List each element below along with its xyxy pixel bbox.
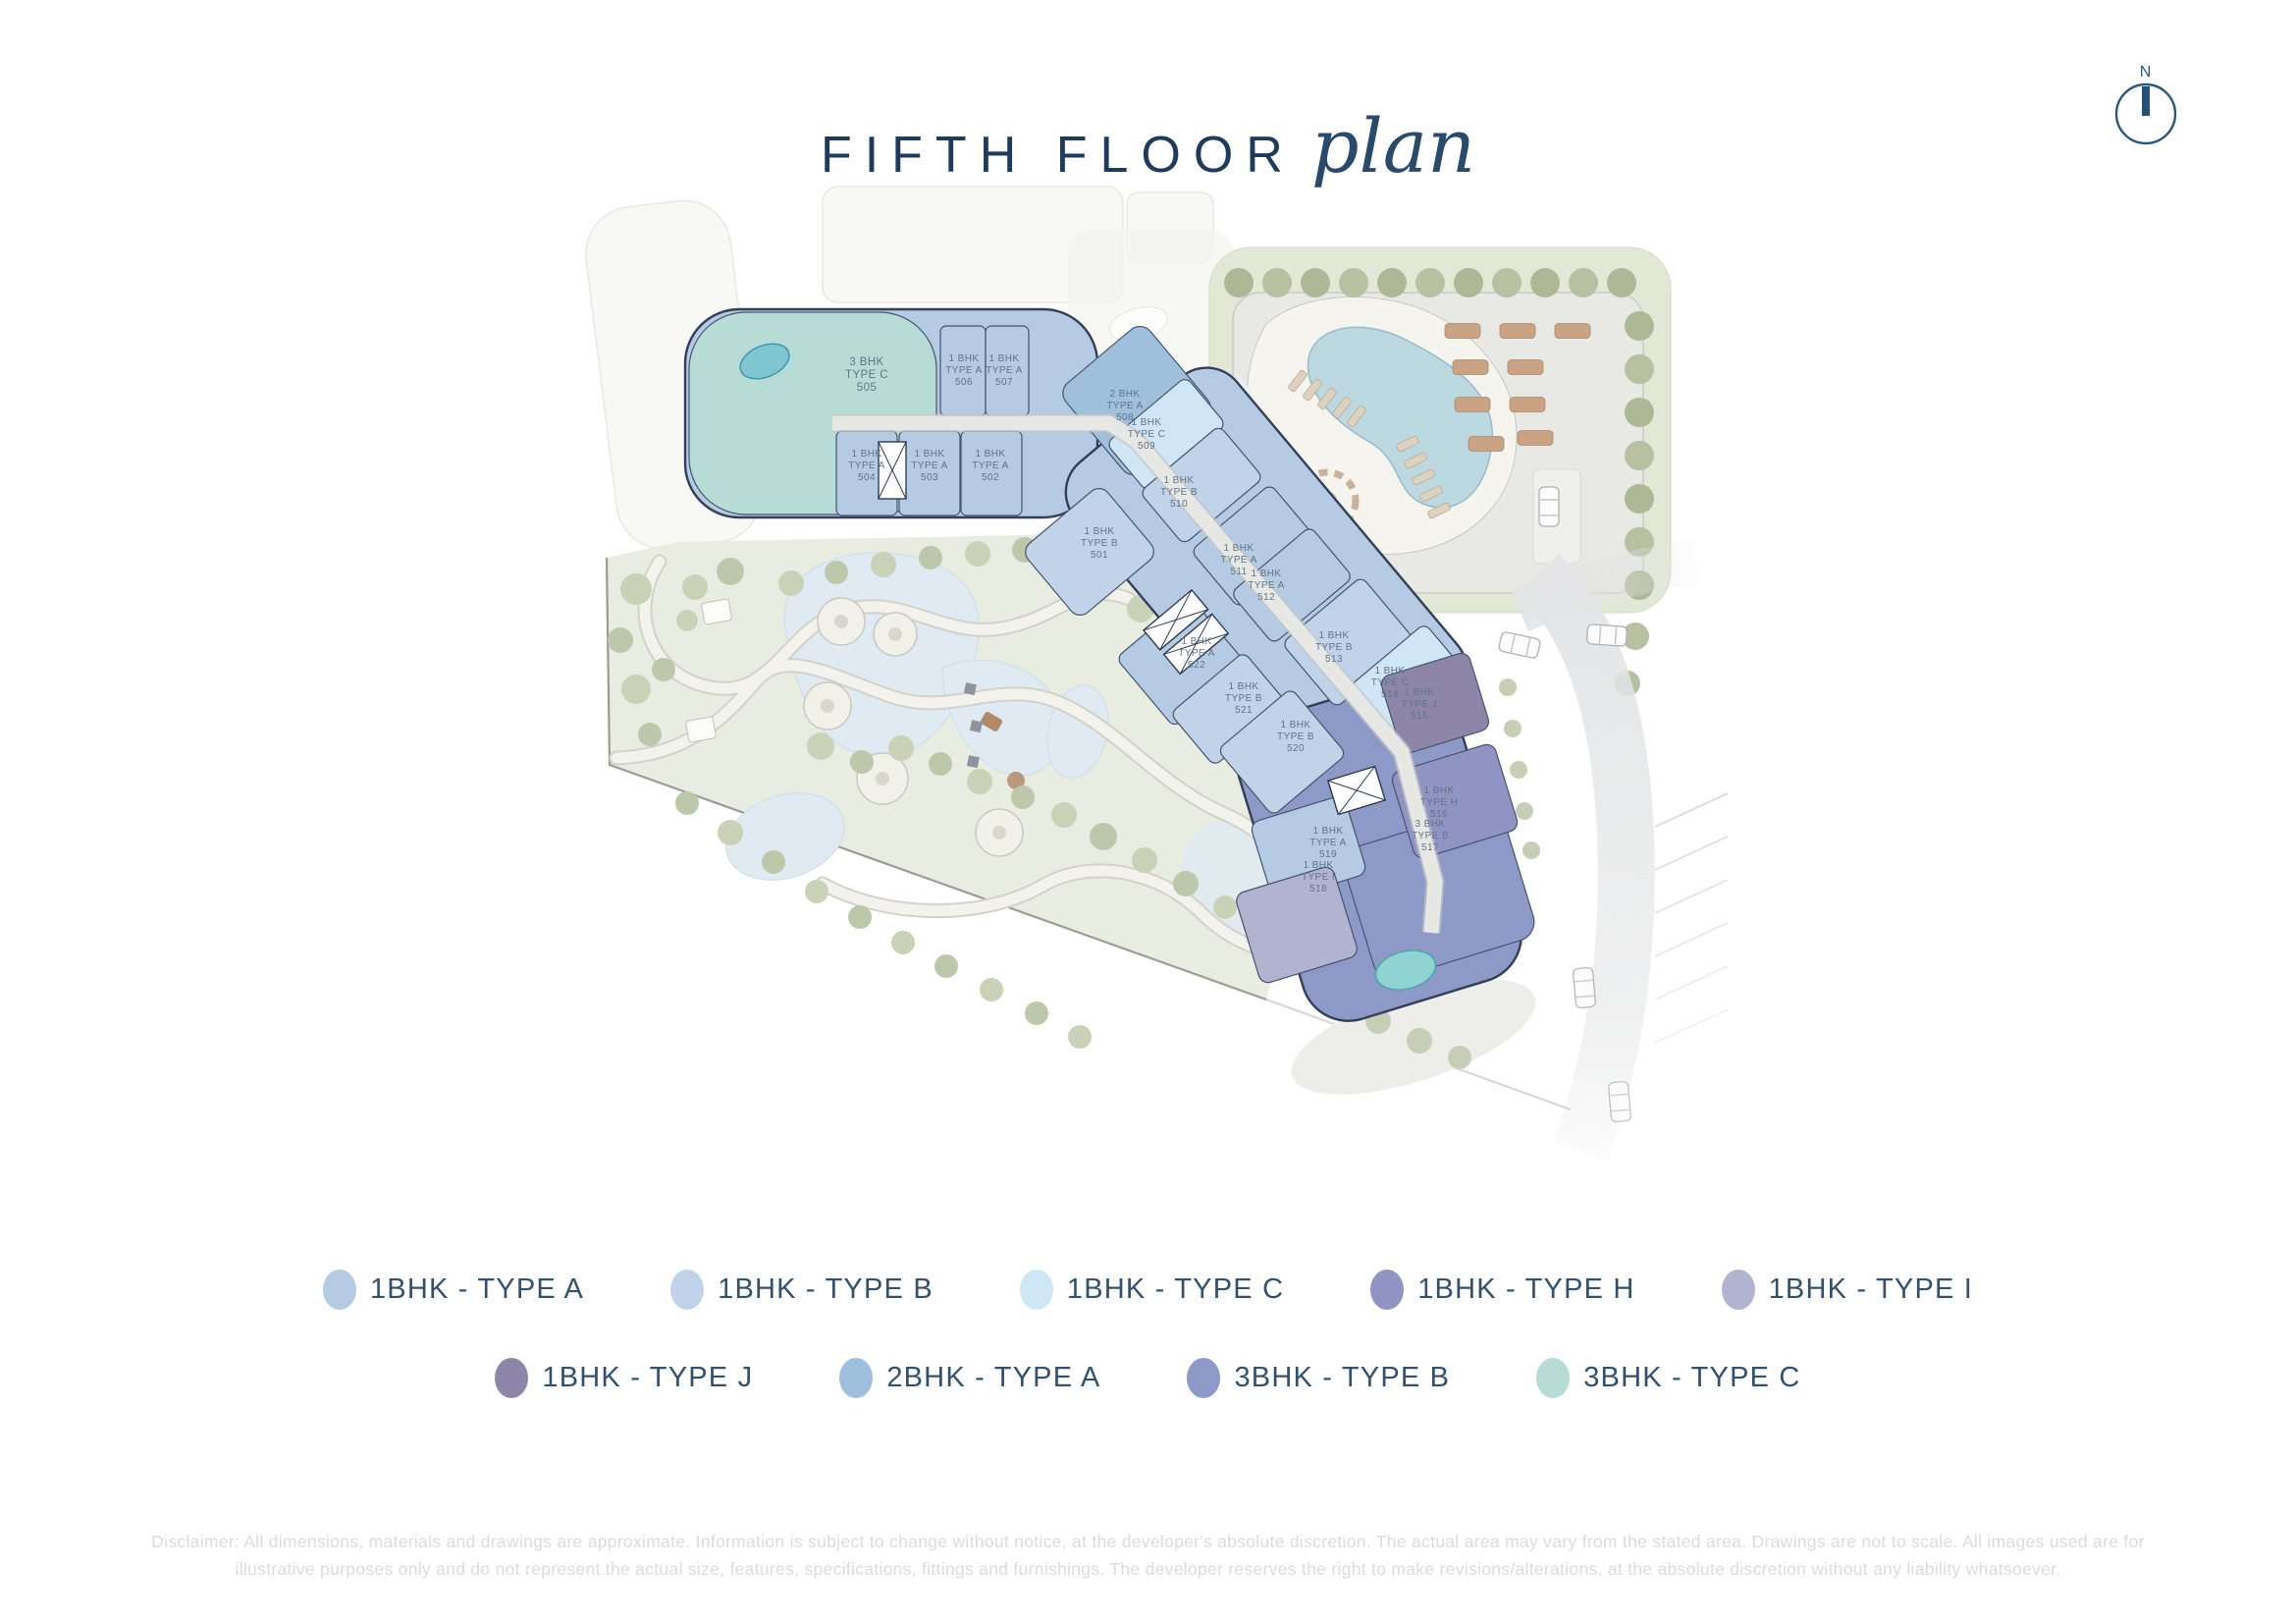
disclaimer: Disclaimer: All dimensions, materials an… (0, 1528, 2296, 1583)
tree-icon (1530, 268, 1560, 298)
tree-icon (1090, 823, 1117, 850)
tree-icon (1025, 1001, 1048, 1025)
tree-icon (608, 627, 633, 653)
tree-icon (1492, 268, 1522, 298)
car-icon (1608, 1081, 1630, 1122)
tree-icon (965, 541, 990, 567)
tree-icon (1625, 484, 1654, 514)
tree-icon (620, 573, 652, 605)
legend-color-dot-icon (1722, 1270, 1755, 1310)
tree-icon (1301, 268, 1330, 298)
tree-icon (967, 769, 992, 794)
tree-icon (1224, 268, 1254, 298)
legend-item-bhk1_b: 1BHK - TYPE B (670, 1270, 934, 1310)
tree-icon (1607, 268, 1636, 298)
tree-icon (1262, 268, 1292, 298)
tree-icon (825, 561, 848, 584)
bush-icon (1504, 720, 1522, 737)
disclaimer-line-2: illustrative purposes only and do not re… (0, 1555, 2296, 1583)
tree-icon (778, 570, 804, 596)
legend-label: 1BHK - TYPE A (370, 1273, 584, 1306)
tree-icon (929, 752, 952, 776)
legend-color-dot-icon (1020, 1270, 1053, 1310)
tree-icon (652, 658, 675, 681)
table-icon (1455, 398, 1490, 412)
legend-color-dot-icon (1187, 1358, 1220, 1398)
legend-label: 1BHK - TYPE J (542, 1362, 753, 1394)
tree-icon (1213, 895, 1237, 919)
north-compass: N (2116, 64, 2175, 143)
legend-item-bhk3_b: 3BHK - TYPE B (1187, 1358, 1450, 1398)
tree-icon (1339, 268, 1368, 298)
table-icon (1510, 398, 1545, 412)
tree-icon (1625, 311, 1654, 341)
tree-icon (1068, 1025, 1092, 1049)
compass-north-label: N (2140, 64, 2153, 81)
legend-color-dot-icon (323, 1270, 356, 1310)
bush-icon (1407, 1028, 1432, 1054)
disclaimer-line-1: Disclaimer: All dimensions, materials an… (0, 1528, 2296, 1555)
table-icon (1508, 360, 1543, 375)
parking-lines (1655, 793, 1728, 1043)
legend: 1BHK - TYPE A1BHK - TYPE B1BHK - TYPE C1… (0, 1269, 2296, 1445)
tree-icon (934, 954, 958, 978)
table-icon (1500, 324, 1535, 339)
legend-item-bhk1_a: 1BHK - TYPE A (323, 1270, 584, 1310)
tree-icon (1625, 354, 1654, 384)
legend-item-bhk1_c: 1BHK - TYPE C (1020, 1270, 1284, 1310)
tree-icon (919, 546, 942, 569)
bush-icon (1448, 1046, 1471, 1069)
tree-icon (848, 905, 872, 929)
tree-icon (1625, 441, 1654, 470)
table-icon (1468, 437, 1504, 452)
tree-icon (850, 750, 874, 774)
tree-icon (762, 850, 785, 874)
legend-item-bhk2_a: 2BHK - TYPE A (839, 1358, 1100, 1398)
tree-icon (676, 610, 698, 631)
tree-icon (888, 735, 914, 761)
legend-color-dot-icon (1370, 1270, 1404, 1310)
table-icon (1445, 324, 1480, 339)
tree-icon (1132, 847, 1157, 873)
tree-icon (717, 558, 744, 585)
tree-icon (1625, 398, 1654, 427)
tree-icon (1569, 268, 1598, 298)
tree-icon (675, 791, 699, 815)
car-icon (1573, 967, 1595, 1008)
car-icon (1539, 487, 1559, 526)
tree-icon (1011, 785, 1035, 809)
tree-icon (807, 732, 834, 760)
legend-label: 1BHK - TYPE H (1417, 1273, 1634, 1306)
table-icon (1453, 360, 1488, 375)
table-icon (1518, 431, 1553, 446)
legend-label: 3BHK - TYPE C (1583, 1362, 1800, 1394)
car-icon (1498, 631, 1540, 659)
legend-label: 1BHK - TYPE I (1769, 1273, 1973, 1306)
legend-color-dot-icon (839, 1358, 873, 1398)
legend-color-dot-icon (495, 1358, 528, 1398)
tree-icon (638, 723, 662, 746)
tree-icon (718, 820, 743, 845)
tree-icon (871, 552, 896, 577)
legend-label: 1BHK - TYPE B (718, 1273, 934, 1306)
tree-icon (980, 978, 1003, 1001)
tree-icon (682, 574, 708, 600)
bush-icon (1522, 841, 1540, 859)
tree-icon (621, 675, 651, 704)
legend-item-bhk1_i: 1BHK - TYPE I (1722, 1270, 1973, 1310)
tree-icon (1051, 802, 1077, 828)
bush-icon (1510, 761, 1527, 779)
legend-item-bhk1_h: 1BHK - TYPE H (1370, 1270, 1634, 1310)
legend-row: 1BHK - TYPE J2BHK - TYPE A3BHK - TYPE B3… (0, 1357, 2296, 1398)
compass-needle-icon (2142, 86, 2150, 116)
legend-label: 3BHK - TYPE B (1234, 1362, 1450, 1394)
tree-icon (1173, 871, 1199, 896)
legend-label: 2BHK - TYPE A (886, 1362, 1100, 1394)
tree-icon (1454, 268, 1483, 298)
legend-color-dot-icon (1536, 1358, 1570, 1398)
legend-item-bhk1_j: 1BHK - TYPE J (495, 1358, 753, 1398)
legend-label: 1BHK - TYPE C (1067, 1273, 1284, 1306)
tree-icon (891, 931, 915, 954)
tree-icon (805, 880, 828, 903)
bush-icon (1516, 802, 1533, 820)
legend-color-dot-icon (670, 1270, 704, 1310)
legend-item-bhk3_c: 3BHK - TYPE C (1536, 1358, 1800, 1398)
car-icon (1586, 624, 1627, 647)
legend-row: 1BHK - TYPE A1BHK - TYPE B1BHK - TYPE C1… (0, 1269, 2296, 1310)
tree-icon (1415, 268, 1445, 298)
bush-icon (1499, 678, 1517, 696)
table-icon (1555, 324, 1590, 339)
tree-icon (1377, 268, 1407, 298)
